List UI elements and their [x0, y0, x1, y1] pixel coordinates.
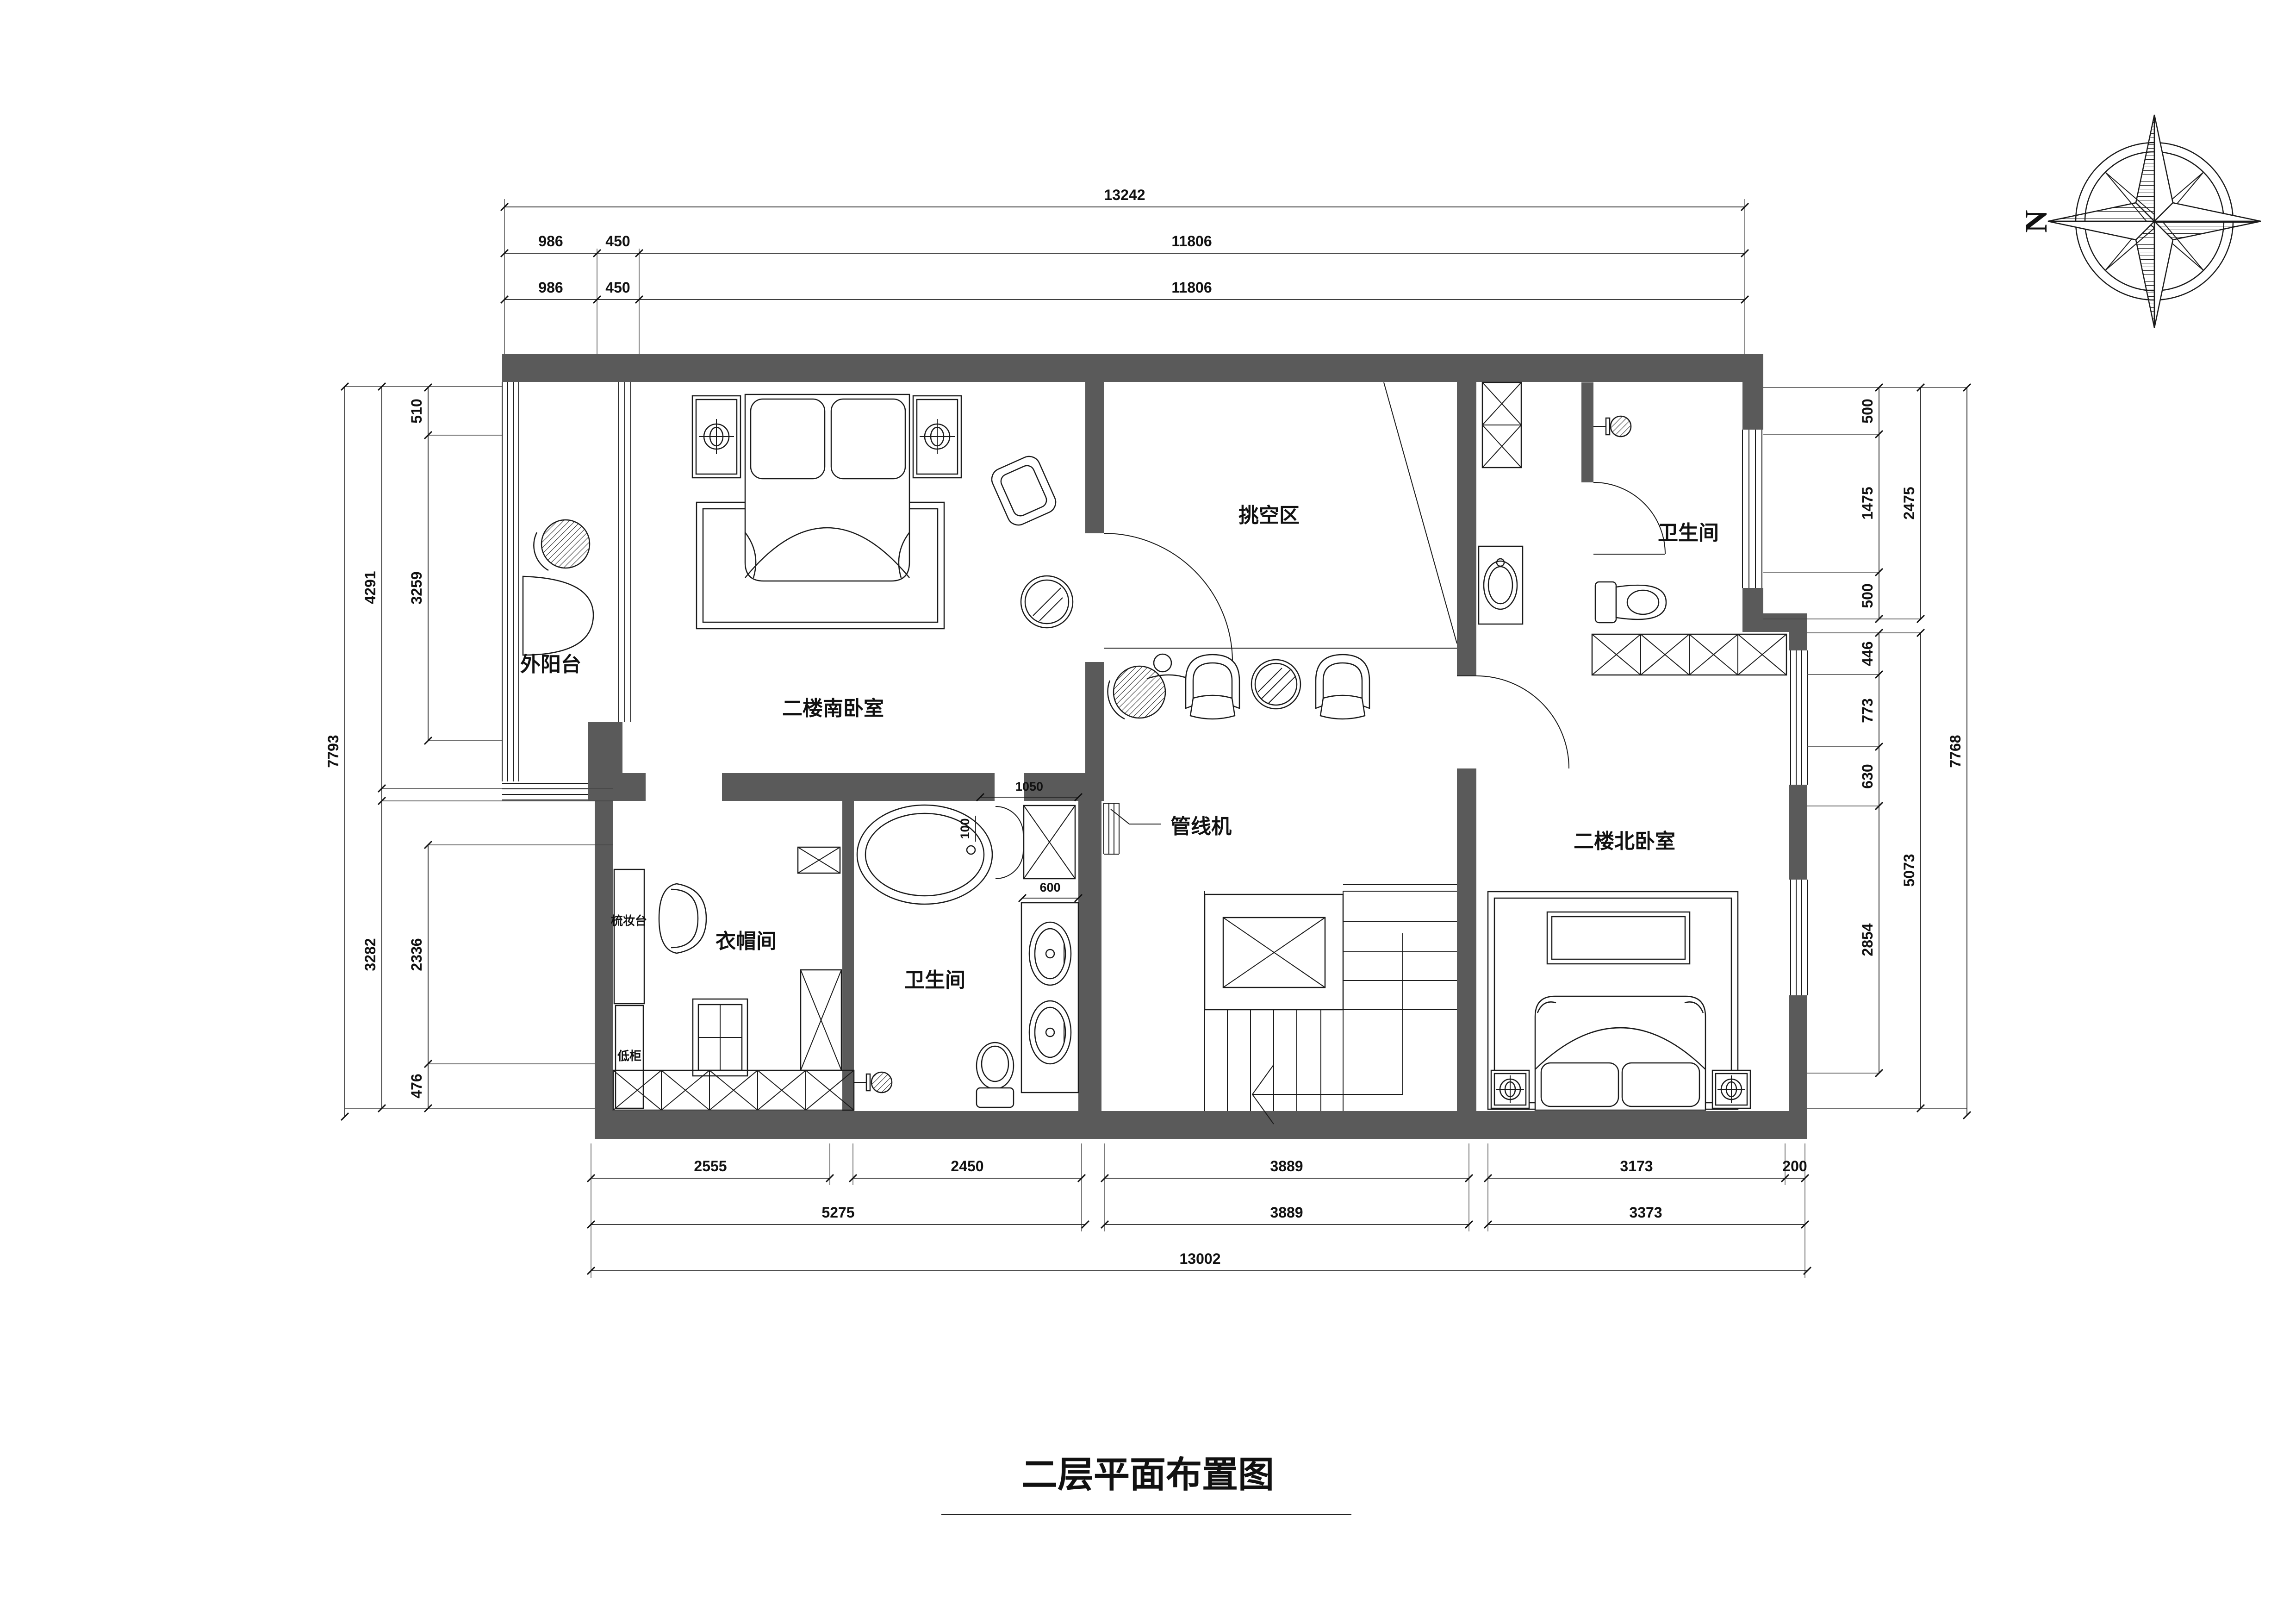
- dim-label: 630: [1859, 764, 1876, 788]
- bathroom-south-fixtures: [854, 805, 1078, 1107]
- window-balcony-west: [502, 382, 519, 781]
- balcony-chair: [541, 520, 590, 568]
- dim-label: 1475: [1859, 487, 1876, 519]
- shower-x-box: [1024, 806, 1075, 879]
- dim-label: 2555: [694, 1158, 727, 1174]
- dimensions-left: 7793 4291 3282 510 3259 2336 476: [325, 383, 613, 1120]
- dressing-table-counter: [614, 869, 644, 1004]
- label-low-cabinet: 低柜: [617, 1049, 641, 1063]
- dim-label: 7768: [1947, 735, 1964, 768]
- window-north-bedroom-east-1: [1791, 650, 1807, 785]
- door-arcs-shower: [996, 806, 1023, 879]
- dim-label: 4291: [362, 571, 379, 604]
- nightstand: [1712, 1070, 1750, 1108]
- dim-label: 7793: [325, 735, 342, 768]
- dim-label: 600: [1039, 881, 1060, 894]
- void-diagonal-line: [1384, 382, 1457, 643]
- wall-south-bedroom-east-upper: [1085, 354, 1104, 533]
- wall-mid-horizontal-a: [613, 773, 646, 801]
- round-table: [1251, 660, 1300, 709]
- dim-label: 5275: [821, 1204, 854, 1221]
- compass-rose-icon: N: [2018, 115, 2261, 328]
- double-bed: [1535, 996, 1705, 1110]
- dim-label: 773: [1859, 698, 1876, 723]
- toilet: [1595, 582, 1666, 623]
- floor-plan-canvas: 13242 986 450 11806 986 450 11806 7793 4…: [0, 0, 2296, 1624]
- window-bedroom-west: [619, 382, 631, 722]
- anteroom-vanity-sink: [1479, 546, 1523, 624]
- room-labels: 外阳台 二楼南卧室 挑空区 卫生间 衣帽间 卫生间 二楼北卧室 梳妆台 低柜 管…: [520, 504, 1719, 1063]
- dim-label: 986: [538, 279, 563, 296]
- stair-treads-lower: [1205, 891, 1343, 1111]
- dim-label: 1050: [1015, 780, 1043, 793]
- wall-east-lower-c: [1789, 995, 1807, 1111]
- dim-label: 2450: [951, 1158, 983, 1174]
- balcony-desk: [523, 576, 593, 655]
- compass-north-label: N: [2018, 210, 2053, 232]
- dim-label: 11806: [1171, 279, 1212, 296]
- closet-x-box: [1482, 382, 1521, 468]
- wall-bath-north-west: [1581, 382, 1593, 482]
- room-label-bathroom-south: 卫生间: [904, 969, 965, 992]
- corridor-seating: [1186, 655, 1369, 719]
- wardrobe-x-column: [801, 970, 841, 1070]
- dim-label: 2854: [1859, 923, 1876, 956]
- wall-north: [502, 354, 1763, 382]
- wall-east-upper-a: [1742, 382, 1763, 430]
- stairwell-x-box: [1223, 918, 1325, 987]
- stair-direction-line: [1252, 933, 1403, 1094]
- dim-label: 2336: [408, 938, 425, 971]
- dim-label: 450: [605, 279, 630, 296]
- dresser: [1547, 912, 1690, 964]
- dim-label: 500: [1859, 583, 1876, 608]
- pipeline-leader-line: [1111, 809, 1161, 824]
- pipeline-unit: [1104, 803, 1161, 854]
- dim-label: 3259: [408, 571, 425, 604]
- staircase: [1205, 885, 1457, 1124]
- double-bed: [745, 394, 909, 581]
- bathroom-north-fixtures: [1479, 382, 1666, 624]
- room-label-bathroom-north: 卫生间: [1658, 522, 1719, 544]
- window-balcony-south: [502, 783, 588, 800]
- wall-south: [595, 1111, 1807, 1139]
- drawing-title-block: 二层平面布置图: [941, 1454, 1351, 1515]
- bathtub: [857, 805, 992, 904]
- door-arc-south-bedroom: [1104, 533, 1232, 662]
- label-dressing-table: 梳妆台: [611, 914, 647, 928]
- dim-label: 2475: [1901, 487, 1917, 519]
- wall-east-lower-b: [1789, 785, 1807, 880]
- dimensions-top: 13242 986 450 11806 986 450 11806: [501, 187, 1748, 354]
- wall-corridor-east-upper: [1457, 354, 1476, 676]
- callout-pipeline: 管线机: [1170, 815, 1232, 838]
- round-mirror-table: [1021, 576, 1073, 628]
- dim-label: 476: [408, 1074, 425, 1098]
- wall-bath-south-east: [1078, 801, 1101, 1111]
- dim-label: 500: [1859, 399, 1876, 423]
- wall-cloak-bath-partition: [842, 801, 854, 1111]
- shower-head-icon: [1593, 416, 1631, 437]
- shower-head-icon: [854, 1072, 892, 1093]
- room-label-void: 挑空区: [1238, 504, 1300, 527]
- nightstand: [1491, 1070, 1529, 1108]
- cabinet-x-box: [798, 847, 840, 873]
- room-label-south-bedroom: 二楼南卧室: [782, 697, 884, 720]
- dim-label: 450: [605, 233, 630, 250]
- dim-label: 3889: [1270, 1158, 1303, 1174]
- armchair: [1186, 655, 1239, 719]
- wall-mid-horizontal-b: [722, 773, 995, 801]
- room-label-cloakroom: 衣帽间: [716, 930, 777, 953]
- dim-label: 510: [408, 399, 425, 423]
- dim-label: 3889: [1270, 1204, 1303, 1221]
- dim-label: 3373: [1629, 1204, 1662, 1221]
- dim-label: 11806: [1171, 233, 1212, 250]
- wall-corridor-east-lower: [1457, 768, 1476, 1111]
- dim-label: 100: [958, 818, 972, 839]
- armchair: [1316, 655, 1369, 719]
- dim-label: 3173: [1620, 1158, 1653, 1174]
- dim-label: 13002: [1180, 1250, 1221, 1267]
- cloak-chair: [659, 884, 706, 953]
- cloakroom-furniture: [613, 847, 854, 1110]
- cloak-table: [693, 999, 747, 1076]
- vanity-double-sink: [1021, 903, 1078, 1093]
- dim-label: 5073: [1901, 854, 1917, 887]
- door-arc-north-bedroom: [1457, 676, 1569, 768]
- dim-label: 3282: [362, 938, 379, 971]
- south-bedroom-furniture: [692, 394, 1209, 719]
- dimensions-bottom: 2555 2450 3889 3173 200 5275 3889 3373 1…: [587, 1143, 1811, 1278]
- door-arc-bath-north: [1593, 482, 1665, 554]
- wall-east-jog: [1742, 613, 1807, 632]
- stair-treads-upper: [1205, 885, 1457, 1010]
- room-label-north-bedroom: 二楼北卧室: [1574, 830, 1675, 853]
- dim-label: 446: [1859, 641, 1876, 666]
- closet-x-row: [1592, 634, 1786, 675]
- window-north-bedroom-east-2: [1791, 880, 1807, 995]
- dim-label: 200: [1782, 1158, 1807, 1174]
- dim-label: 13242: [1104, 187, 1145, 203]
- wall-west-lower: [595, 801, 613, 1111]
- toilet: [977, 1043, 1014, 1107]
- room-label-balcony: 外阳台: [520, 653, 581, 676]
- lounge-chair: [988, 453, 1059, 529]
- dim-label: 986: [538, 233, 563, 250]
- window-bath-north-east: [1742, 430, 1762, 588]
- wall-east-lower-a: [1789, 632, 1807, 650]
- page-title: 二层平面布置图: [1021, 1454, 1274, 1495]
- north-bedroom-furniture: [1488, 634, 1786, 1110]
- balcony-furniture: [523, 520, 593, 655]
